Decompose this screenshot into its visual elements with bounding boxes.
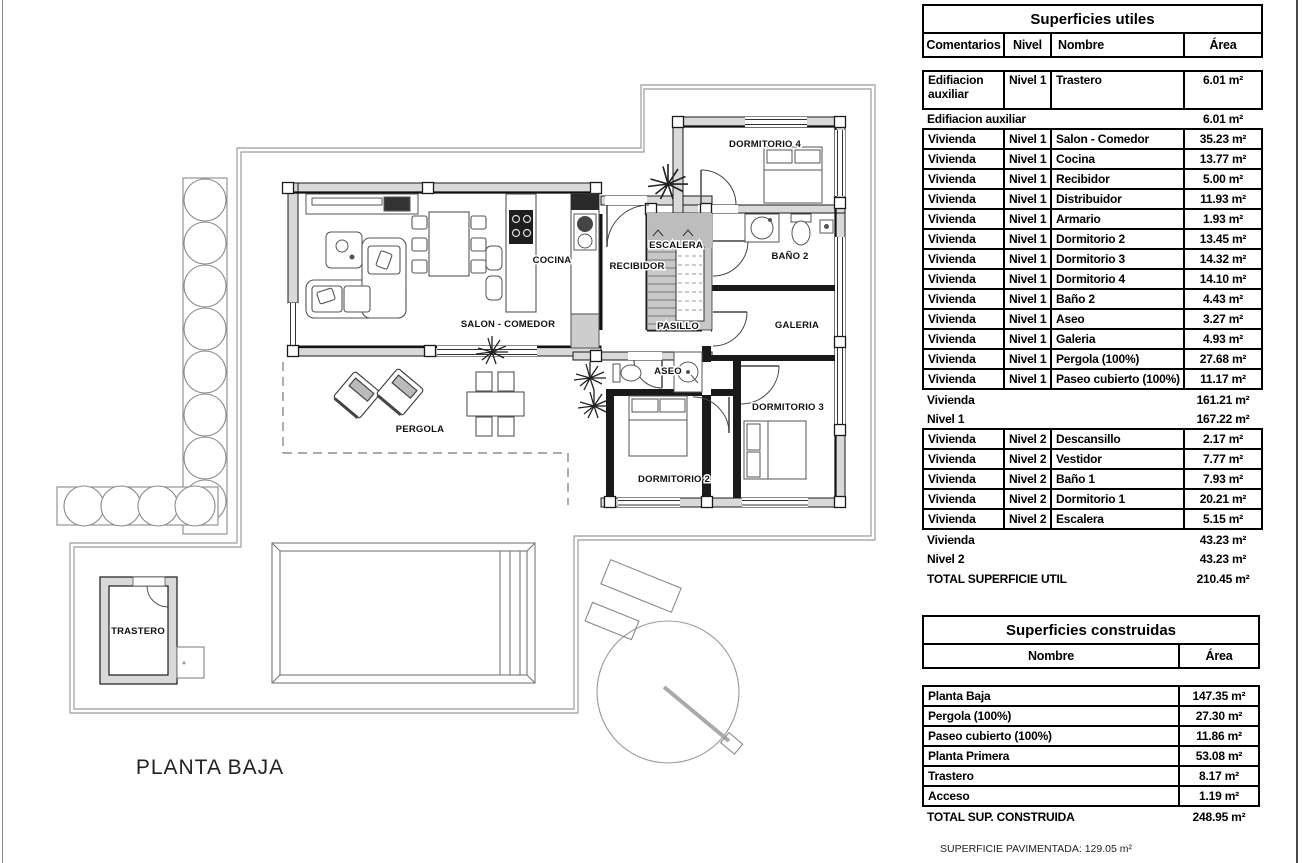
room-label-recibidor: RECIBIDOR xyxy=(609,261,664,272)
cell: Vivienda xyxy=(923,249,1004,269)
bed-dormitorio4 xyxy=(764,147,822,203)
cell: Nivel 1 xyxy=(1004,269,1051,289)
fireplace xyxy=(326,232,362,268)
column-header: Nombre xyxy=(1051,33,1184,57)
cell: Vivienda xyxy=(923,189,1004,209)
cell: 2.17 m² xyxy=(1184,429,1262,449)
floor-plan: DORMITORIO 4 ESCALERA RECIBIDOR COCINA B… xyxy=(0,0,915,863)
cell: Descansillo xyxy=(1051,429,1184,449)
cell: 6.01 m² xyxy=(1184,71,1262,109)
room-label-salon: SALON - COMEDOR xyxy=(461,319,555,330)
summary-area: 6.01 m² xyxy=(1184,109,1262,129)
pergola-armchairs xyxy=(333,368,424,419)
cell: Vestidor xyxy=(1051,449,1184,469)
spacer-row xyxy=(923,57,1262,71)
cell: Vivienda xyxy=(923,509,1004,529)
room-label-trastero: TRASTERO xyxy=(111,626,165,637)
column-header: Comentarios xyxy=(923,33,1004,57)
cell: 27.68 m² xyxy=(1184,349,1262,369)
kitchen-counter xyxy=(571,194,599,348)
cell: 4.43 m² xyxy=(1184,289,1262,309)
summary-label: Vivienda xyxy=(923,529,1184,549)
cell: Vivienda xyxy=(923,289,1004,309)
cell: Nivel 1 xyxy=(1004,249,1051,269)
cell: 147.35 m² xyxy=(1179,686,1259,706)
sheet-frame-right xyxy=(1296,0,1298,863)
cell: Edifiacion auxiliar xyxy=(923,71,1004,109)
summary-label: TOTAL SUP. CONSTRUIDA xyxy=(923,806,1179,826)
cell: Nivel 1 xyxy=(1004,129,1051,149)
cell: 11.86 m² xyxy=(1179,726,1259,746)
cell: Vivienda xyxy=(923,309,1004,329)
cell: Vivienda xyxy=(923,209,1004,229)
room-label-aseo: ASEO xyxy=(654,366,682,377)
cell: Pergola (100%) xyxy=(1051,349,1184,369)
cell: 53.08 m² xyxy=(1179,746,1259,766)
summary-row: TOTAL SUP. CONSTRUIDA248.95 m² xyxy=(923,806,1259,826)
summary-label: Edifiacion auxiliar xyxy=(923,109,1184,129)
cell: Baño 1 xyxy=(1051,469,1184,489)
room-label-escalera: ESCALERA xyxy=(649,240,703,251)
table-title: Superficies utiles xyxy=(923,5,1262,33)
table-row: ViviendaNivel 1Dormitorio 213.45 m² xyxy=(923,229,1262,249)
summary-row: Vivienda161.21 m² xyxy=(923,389,1262,409)
cell: Vivienda xyxy=(923,229,1004,249)
cell: 13.77 m² xyxy=(1184,149,1262,169)
cell: Pergola (100%) xyxy=(923,706,1179,726)
kitchen-island xyxy=(486,194,536,312)
summary-row: Nivel 1167.22 m² xyxy=(923,409,1262,429)
table-title-row: Superficies utiles xyxy=(923,5,1262,33)
superficies-construidas-table: Superficies construidasNombreÁreaPlanta … xyxy=(922,615,1260,826)
summary-label: Vivienda xyxy=(923,389,1184,409)
cell: Nivel 2 xyxy=(1004,469,1051,489)
cell: Dormitorio 1 xyxy=(1051,489,1184,509)
table-row: ViviendaNivel 1Aseo3.27 m² xyxy=(923,309,1262,329)
table-row: ViviendaNivel 2Descansillo2.17 m² xyxy=(923,429,1262,449)
table-header-row: NombreÁrea xyxy=(923,644,1259,668)
summary-area: 43.23 m² xyxy=(1184,529,1262,549)
room-label-dormitorio2: DORMITORIO 2 xyxy=(638,474,710,485)
cell: Nivel 1 xyxy=(1004,169,1051,189)
cell: 3.27 m² xyxy=(1184,309,1262,329)
cell: Distribuidor xyxy=(1051,189,1184,209)
cell: Armario xyxy=(1051,209,1184,229)
cell: Planta Baja xyxy=(923,686,1179,706)
cell: Nivel 1 xyxy=(1004,329,1051,349)
table-row: Edifiacion auxiliarNivel 1Trastero6.01 m… xyxy=(923,71,1262,109)
cell: Trastero xyxy=(923,766,1179,786)
round-terrace xyxy=(585,560,743,763)
cell: Nivel 1 xyxy=(1004,189,1051,209)
room-label-pergola: PERGOLA xyxy=(396,424,444,435)
cell: 4.93 m² xyxy=(1184,329,1262,349)
room-label-bano2: BAÑO 2 xyxy=(771,251,808,262)
pergola-table xyxy=(467,372,524,436)
table-row: Pergola (100%)27.30 m² xyxy=(923,706,1259,726)
room-label-cocina: COCINA xyxy=(533,255,572,266)
cell: Recibidor xyxy=(1051,169,1184,189)
pavement-note: SUPERFICIE PAVIMENTADA: 129.05 m² xyxy=(940,843,1132,855)
cell: 20.21 m² xyxy=(1184,489,1262,509)
summary-area: 161.21 m² xyxy=(1184,389,1262,409)
cell: Trastero xyxy=(1051,71,1184,109)
cell: 1.93 m² xyxy=(1184,209,1262,229)
table-row: Acceso1.19 m² xyxy=(923,786,1259,806)
cell: Nivel 1 xyxy=(1004,229,1051,249)
cell: Vivienda xyxy=(923,149,1004,169)
room-label-dormitorio3: DORMITORIO 3 xyxy=(752,402,824,413)
table-row: ViviendaNivel 1Salon - Comedor35.23 m² xyxy=(923,129,1262,149)
column-header: Área xyxy=(1184,33,1262,57)
cell: 11.17 m² xyxy=(1184,369,1262,389)
cell: Vivienda xyxy=(923,449,1004,469)
column-header: Área xyxy=(1179,644,1259,668)
cell: Nivel 1 xyxy=(1004,289,1051,309)
summary-row: Nivel 243.23 m² xyxy=(923,549,1262,569)
cell: 11.93 m² xyxy=(1184,189,1262,209)
table-row: ViviendaNivel 2Dormitorio 120.21 m² xyxy=(923,489,1262,509)
cell: Vivienda xyxy=(923,269,1004,289)
cell: 27.30 m² xyxy=(1179,706,1259,726)
table-row: Paseo cubierto (100%)11.86 m² xyxy=(923,726,1259,746)
cell: Dormitorio 2 xyxy=(1051,229,1184,249)
tree-strip-vertical xyxy=(183,178,227,534)
cell: 5.15 m² xyxy=(1184,509,1262,529)
table-row: ViviendaNivel 1Pergola (100%)27.68 m² xyxy=(923,349,1262,369)
summary-row: Vivienda43.23 m² xyxy=(923,529,1262,549)
column-header: Nivel xyxy=(1004,33,1051,57)
cell: Galeria xyxy=(1051,329,1184,349)
bed-dormitorio2 xyxy=(629,396,687,456)
dining-table xyxy=(412,212,486,276)
table-row: ViviendaNivel 1Distribuidor11.93 m² xyxy=(923,189,1262,209)
table-row: Trastero8.17 m² xyxy=(923,766,1259,786)
summary-label: Nivel 2 xyxy=(923,549,1184,569)
cell: Nivel 1 xyxy=(1004,369,1051,389)
cell: Aseo xyxy=(1051,309,1184,329)
bathroom2-fixtures xyxy=(745,214,833,245)
column-header: Nombre xyxy=(923,644,1179,668)
table-row: ViviendaNivel 1Cocina13.77 m² xyxy=(923,149,1262,169)
table-header-row: ComentariosNivelNombreÁrea xyxy=(923,33,1262,57)
table-title: Superficies construidas xyxy=(923,616,1259,644)
cell: 14.32 m² xyxy=(1184,249,1262,269)
table-row: Planta Primera53.08 m² xyxy=(923,746,1259,766)
cell: Nivel 2 xyxy=(1004,489,1051,509)
summary-area: 210.45 m² xyxy=(1184,569,1262,589)
table-row: ViviendaNivel 2Vestidor7.77 m² xyxy=(923,449,1262,469)
summary-area: 248.95 m² xyxy=(1179,806,1259,826)
room-label-pasillo: PASILLO xyxy=(657,321,699,332)
superficies-utiles-table: Superficies utilesComentariosNivelNombre… xyxy=(922,4,1263,589)
cell: Vivienda xyxy=(923,429,1004,449)
table-row: ViviendaNivel 1Recibidor5.00 m² xyxy=(923,169,1262,189)
table-row: ViviendaNivel 1Armario1.93 m² xyxy=(923,209,1262,229)
table-row: Planta Baja147.35 m² xyxy=(923,686,1259,706)
cell: Nivel 1 xyxy=(1004,71,1051,109)
tree-strip-horizontal xyxy=(57,486,218,526)
cell: 13.45 m² xyxy=(1184,229,1262,249)
cell: Nivel 2 xyxy=(1004,509,1051,529)
table-row: ViviendaNivel 1Dormitorio 314.32 m² xyxy=(923,249,1262,269)
tv-unit xyxy=(306,194,418,214)
cell: Paseo cubierto (100%) xyxy=(1051,369,1184,389)
table-title-row: Superficies construidas xyxy=(923,616,1259,644)
table-row: ViviendaNivel 2Baño 17.93 m² xyxy=(923,469,1262,489)
pool xyxy=(272,543,535,683)
summary-area: 43.23 m² xyxy=(1184,549,1262,569)
cell: 7.93 m² xyxy=(1184,469,1262,489)
cell: Dormitorio 3 xyxy=(1051,249,1184,269)
cell: Planta Primera xyxy=(923,746,1179,766)
spacer-row xyxy=(923,668,1259,686)
table-row: ViviendaNivel 1Dormitorio 414.10 m² xyxy=(923,269,1262,289)
room-label-galeria: GALERIA xyxy=(775,320,819,331)
cell: Vivienda xyxy=(923,369,1004,389)
cell: Nivel 1 xyxy=(1004,309,1051,329)
cell: Vivienda xyxy=(923,489,1004,509)
summary-label: TOTAL SUPERFICIE UTIL xyxy=(923,569,1184,589)
summary-row: Edifiacion auxiliar6.01 m² xyxy=(923,109,1262,129)
cell: Vivienda xyxy=(923,169,1004,189)
cell: Vivienda xyxy=(923,469,1004,489)
room-label-dormitorio4: DORMITORIO 4 xyxy=(729,139,801,150)
cell: Nivel 2 xyxy=(1004,429,1051,449)
drawing-sheet: DORMITORIO 4 ESCALERA RECIBIDOR COCINA B… xyxy=(0,0,1315,863)
cell: Vivienda xyxy=(923,129,1004,149)
cell: Cocina xyxy=(1051,149,1184,169)
cell: 14.10 m² xyxy=(1184,269,1262,289)
cell: Nivel 2 xyxy=(1004,449,1051,469)
summary-label: Nivel 1 xyxy=(923,409,1184,429)
table-row: ViviendaNivel 2Escalera5.15 m² xyxy=(923,509,1262,529)
plan-title: PLANTA BAJA xyxy=(136,756,284,779)
summary-area: 167.22 m² xyxy=(1184,409,1262,429)
table-row: ViviendaNivel 1Baño 24.43 m² xyxy=(923,289,1262,309)
cell: Nivel 1 xyxy=(1004,149,1051,169)
cell: Baño 2 xyxy=(1051,289,1184,309)
cell: 5.00 m² xyxy=(1184,169,1262,189)
cell: Paseo cubierto (100%) xyxy=(923,726,1179,746)
cell: 7.77 m² xyxy=(1184,449,1262,469)
cell: Vivienda xyxy=(923,329,1004,349)
cell: Nivel 1 xyxy=(1004,349,1051,369)
cell: Nivel 1 xyxy=(1004,209,1051,229)
cell: Dormitorio 4 xyxy=(1051,269,1184,289)
bed-dormitorio3 xyxy=(744,421,806,479)
summary-row: TOTAL SUPERFICIE UTIL210.45 m² xyxy=(923,569,1262,589)
cell: Salon - Comedor xyxy=(1051,129,1184,149)
cell: 35.23 m² xyxy=(1184,129,1262,149)
cell: Vivienda xyxy=(923,349,1004,369)
cell: Escalera xyxy=(1051,509,1184,529)
cell: 8.17 m² xyxy=(1179,766,1259,786)
cell: 1.19 m² xyxy=(1179,786,1259,806)
cell: Acceso xyxy=(923,786,1179,806)
table-row: ViviendaNivel 1Paseo cubierto (100%)11.1… xyxy=(923,369,1262,389)
table-row: ViviendaNivel 1Galeria4.93 m² xyxy=(923,329,1262,349)
